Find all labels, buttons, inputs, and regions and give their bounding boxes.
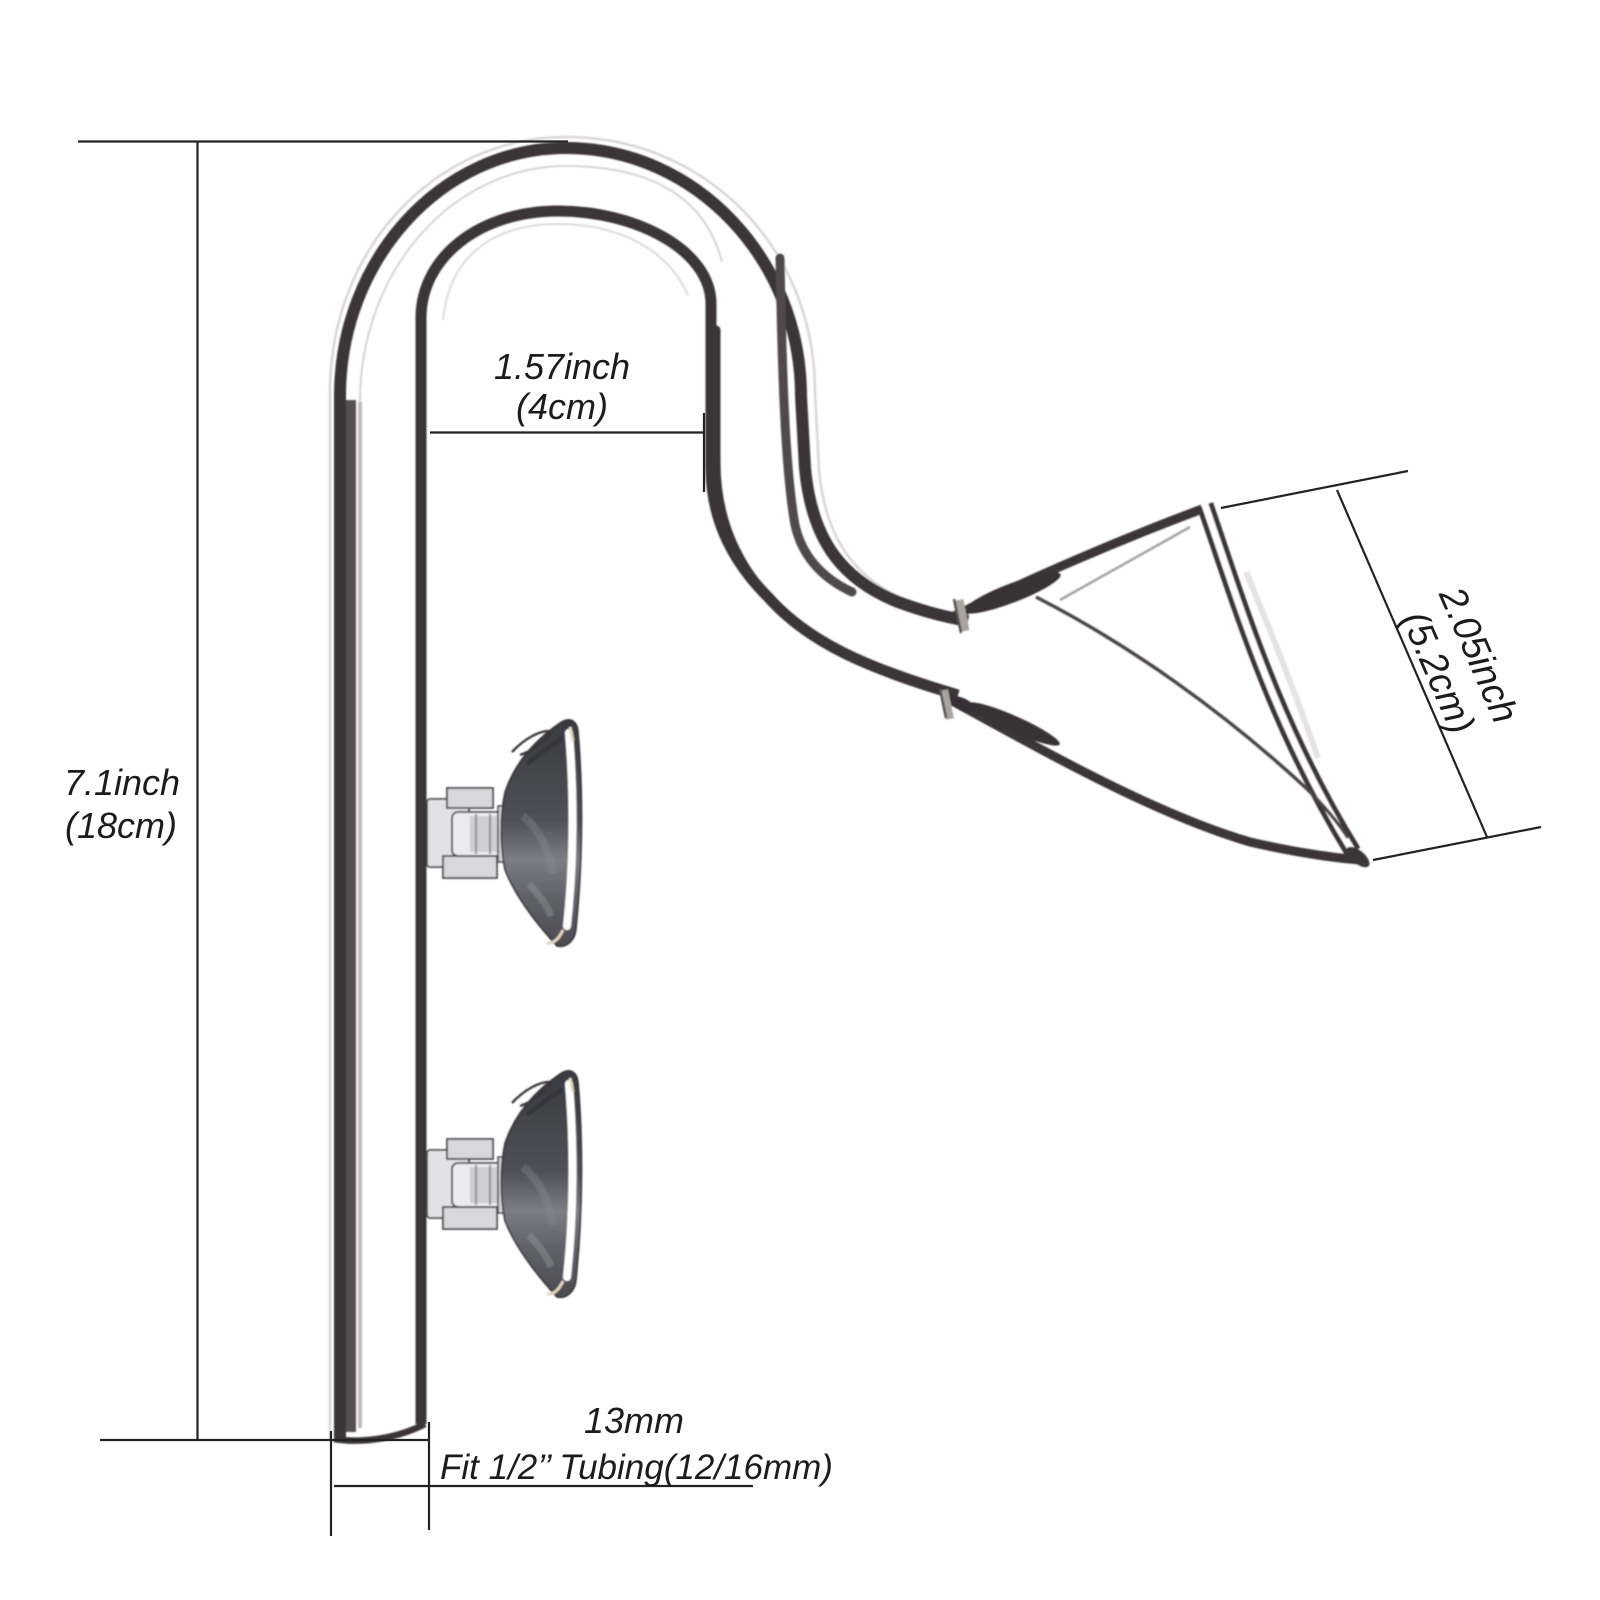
- svg-text:1.57inch: 1.57inch: [494, 346, 630, 387]
- svg-text:13mm: 13mm: [584, 1400, 684, 1441]
- svg-text:7.1inch: 7.1inch: [64, 762, 180, 803]
- svg-text:Fit 1/2’’ Tubing(12/16mm): Fit 1/2’’ Tubing(12/16mm): [440, 1448, 833, 1487]
- svg-text:(4cm): (4cm): [516, 386, 608, 427]
- svg-text:(18cm): (18cm): [65, 805, 177, 846]
